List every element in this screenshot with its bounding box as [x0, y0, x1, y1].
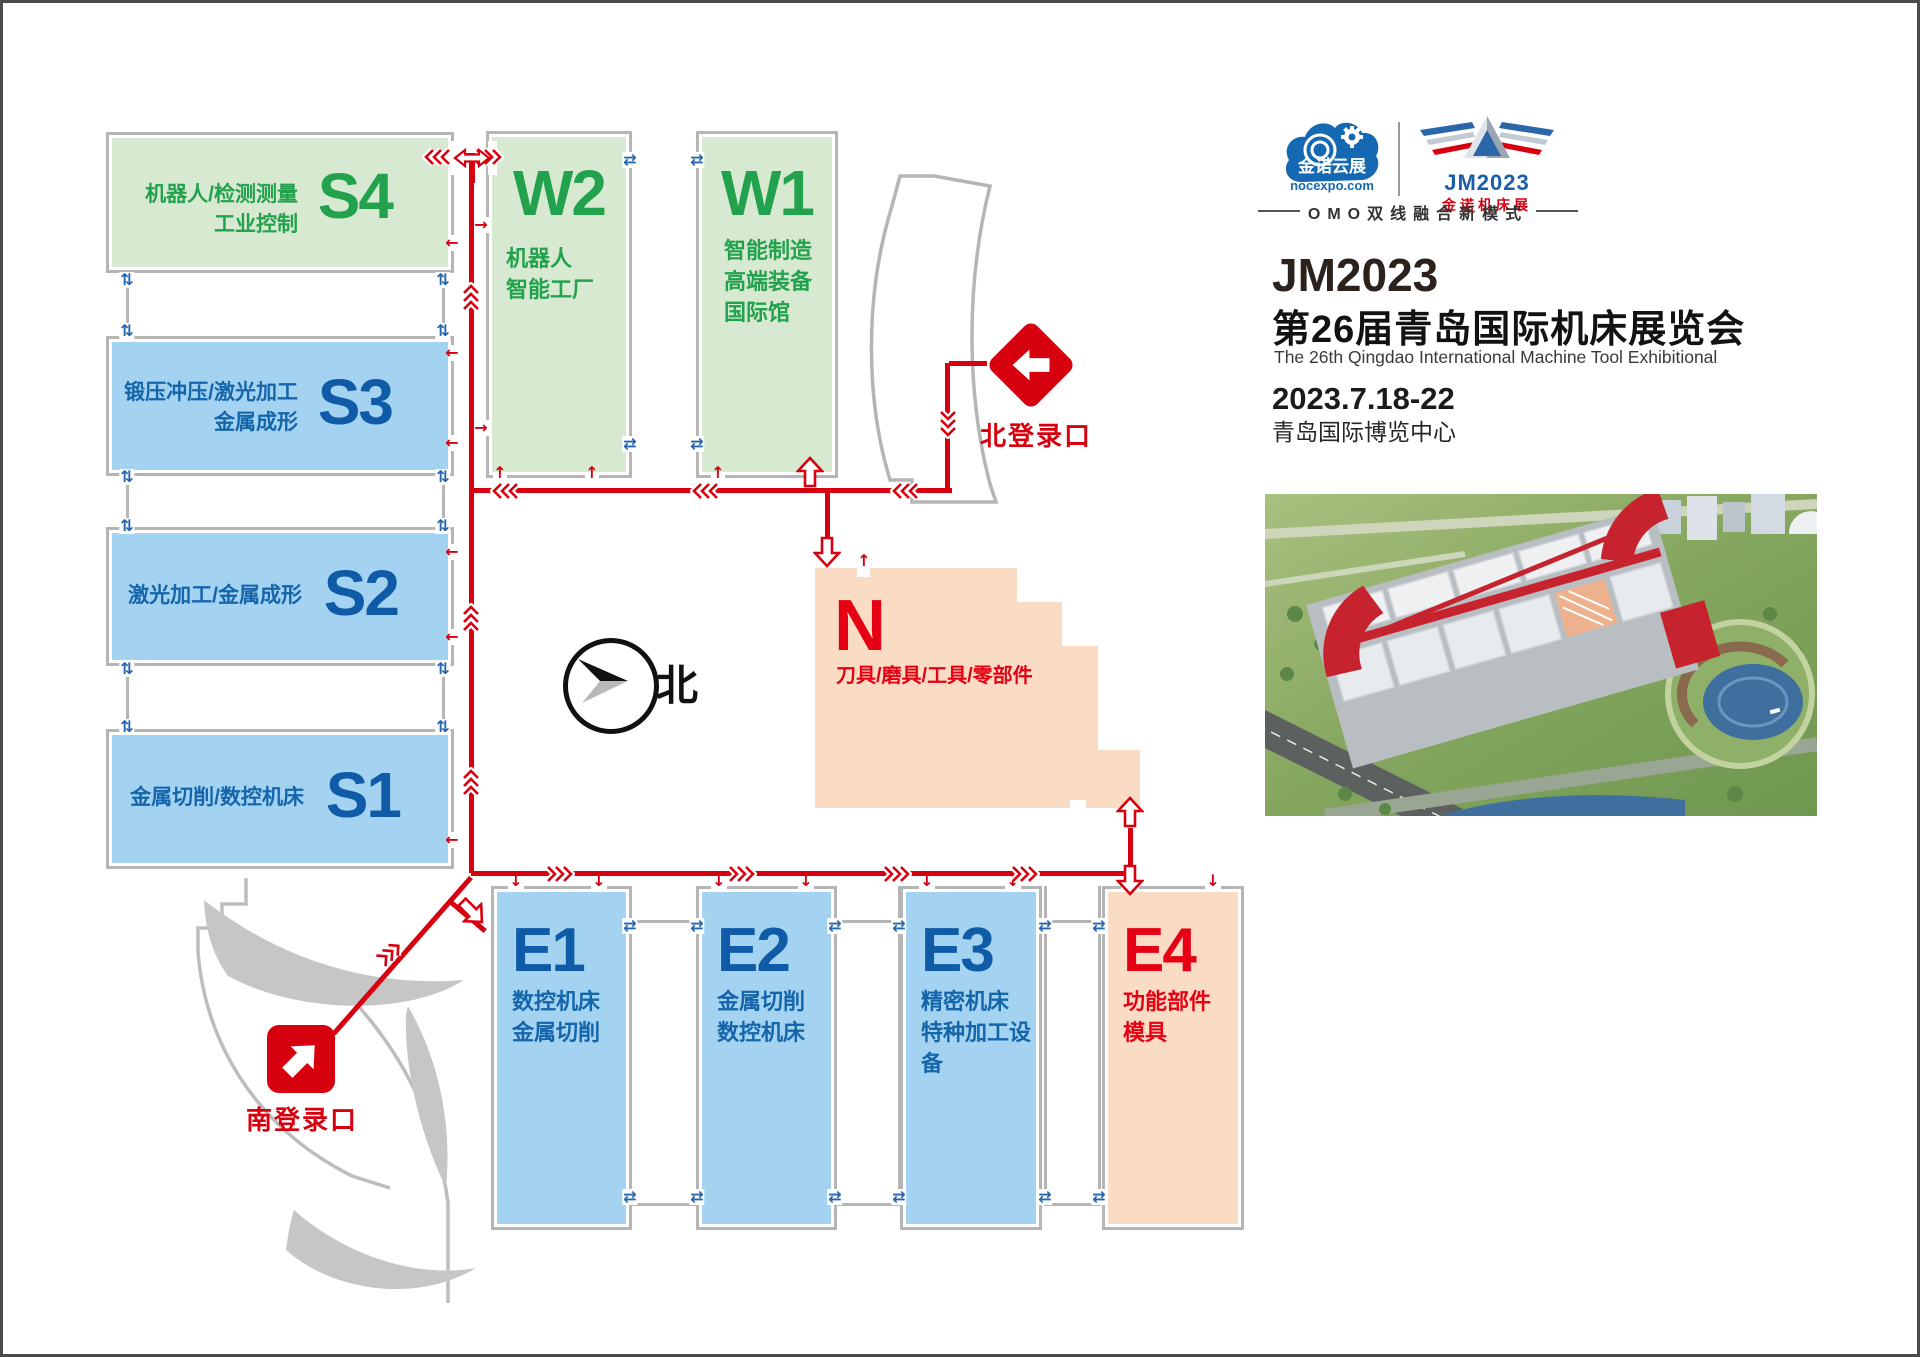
door-arrow-icon: ↑ — [493, 465, 506, 481]
door-arrow-icon: ← — [445, 629, 458, 645]
venue-aerial-rendering — [1265, 494, 1817, 816]
route-chevron-icon — [460, 282, 482, 312]
hall-e1-desc: 数控机床 金属切削 — [512, 986, 600, 1048]
transfer-arrow-icon: ⇅ — [119, 719, 134, 735]
hall-s3-desc: 锻压冲压/激光加工 金属成形 — [124, 378, 298, 438]
cloud-logo-domain: nocexpo.com — [1290, 178, 1374, 193]
hall-e2-id: E2 — [717, 920, 789, 982]
exhibition-venue: 青岛国际博览中心 — [1272, 413, 1456, 447]
transfer-arrow-icon: ⇅ — [119, 661, 134, 677]
hall-e3-id: E3 — [921, 920, 993, 982]
door-arrow-icon: ↓ — [799, 873, 812, 889]
transfer-arrow-icon: ⇄ — [1091, 1189, 1106, 1205]
logo-divider — [1398, 122, 1400, 196]
transfer-arrow-icon: ⇄ — [689, 1189, 704, 1205]
hall-e1: E1 数控机床 金属切削 — [497, 892, 626, 1224]
hall-e1-id: E1 — [512, 920, 584, 982]
transfer-arrow-icon: ⇅ — [119, 272, 134, 288]
transfer-arrow-icon: ⇅ — [119, 518, 134, 534]
route-chevron-icon — [545, 863, 575, 885]
transfer-arrow-icon: ⇅ — [435, 518, 450, 534]
transfer-arrow-icon: ⇄ — [1037, 1189, 1052, 1205]
hall-e3: E3 精密机床 特种加工设备 — [906, 892, 1036, 1224]
hall-w2-desc: 机器人 智能工厂 — [506, 243, 594, 305]
hall-s2: S2 激光加工/金属成形 — [112, 533, 448, 660]
transfer-arrow-icon: ⇄ — [827, 918, 842, 934]
exhibition-title-cn: 第26届青岛国际机床展览会 — [1272, 298, 1745, 353]
transfer-arrow-icon: ⇅ — [435, 661, 450, 677]
wall-door-gap — [1070, 800, 1086, 809]
route-block-arrow-icon — [813, 536, 841, 568]
route-line — [949, 361, 987, 366]
jm-wings-triangle-icon — [1412, 114, 1562, 166]
corridor-wall — [629, 131, 632, 472]
door-arrow-icon: ← — [445, 235, 458, 251]
hall-s2-desc: 激光加工/金属成形 — [128, 581, 302, 611]
door-arrow-icon: ↑ — [857, 553, 870, 569]
hall-w1-desc: 智能制造 高端装备 国际馆 — [724, 235, 812, 329]
route-chevron-icon — [460, 767, 482, 797]
entrance-arrow-left-icon — [1009, 345, 1053, 385]
south-entrance-marker — [267, 1025, 335, 1093]
hall-s4: S4 机器人/检测测量 工业控制 — [112, 138, 448, 267]
hall-e2-desc: 金属切削 数控机床 — [717, 986, 805, 1048]
exhibition-title-en: The 26th Qingdao International Machine T… — [1274, 347, 1717, 368]
route-chevron-icon — [882, 863, 912, 885]
hall-s3-id: S3 — [318, 370, 392, 434]
route-chevron-icon — [460, 603, 482, 633]
door-arrow-icon: ↓ — [712, 873, 725, 889]
hall-w1-id: W1 — [702, 161, 832, 225]
door-arrow-icon: ↓ — [1206, 873, 1219, 889]
transfer-arrow-icon: ⇄ — [1091, 918, 1106, 934]
jm2023-logo: JM2023 金诺机床展 — [1412, 114, 1562, 204]
nocexpo-cloud-logo: 金诺云展 nocexpo.com — [1280, 116, 1384, 200]
transfer-arrow-icon: ⇅ — [435, 323, 450, 339]
curved-building-outline — [838, 172, 1018, 517]
door-arrow-icon: ← — [445, 435, 458, 451]
route-chevron-icon — [727, 863, 757, 885]
door-arrow-icon: ↓ — [509, 873, 522, 889]
transfer-arrow-icon: ⇄ — [689, 152, 704, 168]
wordmark-title: JM2023 — [1272, 248, 1438, 302]
hall-s1-id: S1 — [326, 763, 400, 827]
route-chevron-icon — [690, 480, 720, 502]
hall-s1-desc: 金属切削/数控机床 — [130, 783, 304, 813]
transfer-arrow-icon: ⇅ — [119, 323, 134, 339]
compass-label: 北 — [656, 652, 698, 713]
transfer-arrow-icon: ⇄ — [891, 918, 906, 934]
hall-e3-desc: 精密机床 特种加工设备 — [921, 986, 1036, 1080]
hall-e4-id: E4 — [1123, 920, 1195, 982]
slogan-text: OMO双线融合新模式 — [1308, 200, 1528, 224]
door-arrow-icon: ↑ — [711, 465, 724, 481]
transfer-arrow-icon: ⇄ — [1037, 918, 1052, 934]
slogan-line-left — [1258, 210, 1300, 212]
hall-s1: S1 金属切削/数控机床 — [112, 735, 448, 863]
route-chevron-icon — [1010, 863, 1040, 885]
hall-w2: W2 机器人 智能工厂 — [492, 137, 626, 472]
route-double-arrow-icon — [452, 146, 492, 170]
hall-e2: E2 金属切削 数控机床 — [702, 892, 831, 1224]
hall-s2-id: S2 — [324, 561, 398, 625]
transfer-arrow-icon: ⇄ — [622, 918, 637, 934]
door-arrow-icon: ↑ — [585, 465, 598, 481]
door-arrow-icon: → — [474, 420, 487, 436]
hall-e4: E4 功能部件 模具 — [1108, 892, 1238, 1224]
route-chevron-icon — [422, 146, 452, 168]
route-chevron-icon — [890, 480, 920, 502]
compass — [563, 638, 659, 734]
transfer-arrow-icon: ⇄ — [689, 918, 704, 934]
exhibition-map-poster: S4 机器人/检测测量 工业控制 S3 锻压冲压/激光加工 金属成形 S2 激光… — [0, 0, 1920, 1357]
transfer-arrow-icon: ⇄ — [622, 152, 637, 168]
south-entrance-label: 南登录口 — [242, 1100, 362, 1137]
exhibition-dates: 2023.7.18-22 — [1272, 381, 1455, 417]
route-block-arrow-icon — [1116, 864, 1144, 896]
door-arrow-icon: ← — [445, 832, 458, 848]
hall-s4-id: S4 — [318, 164, 392, 228]
route-block-arrow-icon — [1116, 796, 1144, 828]
hall-n-id: N — [834, 590, 884, 662]
transfer-arrow-icon: ⇅ — [119, 469, 134, 485]
hall-s4-desc: 机器人/检测测量 工业控制 — [145, 180, 298, 240]
omo-slogan: OMO双线融合新模式 — [1262, 200, 1574, 224]
route-block-arrow-icon — [796, 456, 824, 488]
transfer-arrow-icon: ⇅ — [435, 719, 450, 735]
transfer-arrow-icon: ⇅ — [435, 272, 450, 288]
hall-n-desc: 刀具/磨具/工具/零部件 — [836, 662, 1033, 690]
transfer-arrow-icon: ⇄ — [827, 1189, 842, 1205]
door-arrow-icon: ← — [445, 544, 458, 560]
hall-w1: W1 智能制造 高端装备 国际馆 — [702, 137, 832, 472]
compass-needle-icon — [568, 643, 644, 719]
route-chevron-icon — [937, 409, 959, 439]
hall-w2-id: W2 — [492, 161, 626, 225]
jm-logo-wordmark: JM2023 — [1412, 171, 1562, 195]
transfer-arrow-icon: ⇄ — [622, 436, 637, 452]
cloud-gear-icon: 金诺云展 nocexpo.com — [1280, 116, 1384, 200]
door-arrow-icon: ← — [445, 345, 458, 361]
entrance-arrow-upright-icon — [270, 1028, 332, 1090]
door-arrow-icon: ↓ — [920, 873, 933, 889]
transfer-arrow-icon: ⇄ — [891, 1189, 906, 1205]
cloud-logo-name: 金诺云展 — [1297, 156, 1366, 176]
slogan-line-right — [1536, 210, 1578, 212]
door-arrow-icon: ↓ — [592, 873, 605, 889]
hall-s3: S3 锻压冲压/激光加工 金属成形 — [112, 342, 448, 470]
transfer-arrow-icon: ⇄ — [622, 1189, 637, 1205]
route-chevron-icon — [490, 480, 520, 502]
north-entrance-label: 北登录口 — [976, 416, 1096, 453]
door-arrow-icon: → — [474, 217, 487, 233]
corridor-wall — [696, 131, 699, 472]
hall-e4-desc: 功能部件 模具 — [1123, 986, 1211, 1048]
transfer-arrow-icon: ⇄ — [689, 436, 704, 452]
transfer-arrow-icon: ⇅ — [435, 469, 450, 485]
